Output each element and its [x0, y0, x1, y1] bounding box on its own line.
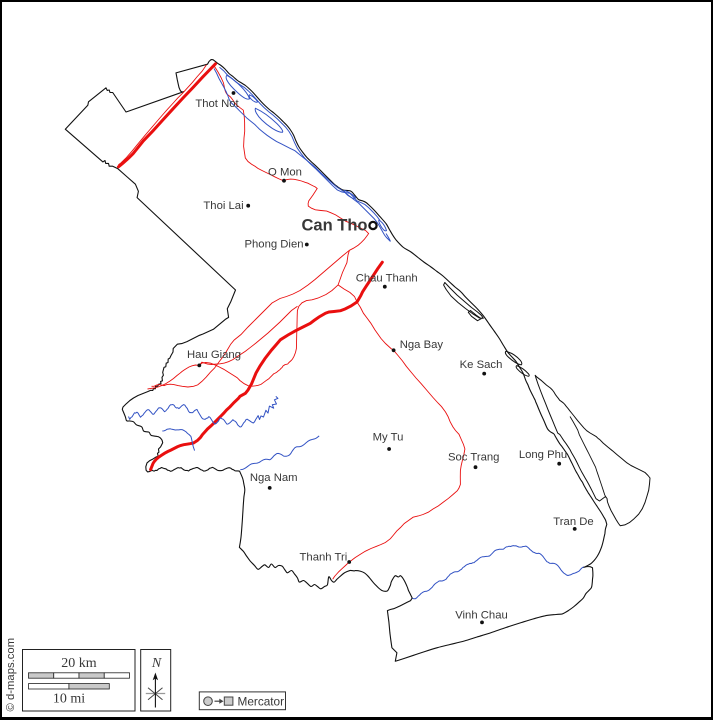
svg-text:Can Tho: Can Tho	[302, 217, 368, 235]
svg-text:Phong Dien: Phong Dien	[244, 239, 303, 251]
svg-text:Vinh Chau: Vinh Chau	[455, 610, 508, 622]
svg-text:Long Phu: Long Phu	[519, 449, 567, 461]
svg-text:Ke Sach: Ke Sach	[460, 359, 503, 371]
svg-text:Nga Bay: Nga Bay	[400, 339, 444, 351]
svg-text:Thot Not: Thot Not	[195, 98, 239, 110]
svg-text:Tran De: Tran De	[553, 516, 593, 528]
svg-text:My Tu: My Tu	[373, 432, 404, 444]
svg-text:10 mi: 10 mi	[53, 692, 85, 707]
svg-text:N: N	[151, 656, 162, 671]
svg-text:O Mon: O Mon	[268, 167, 302, 179]
svg-text:Hau Giang: Hau Giang	[187, 349, 241, 361]
svg-text:Thoi Lai: Thoi Lai	[203, 200, 243, 212]
svg-text:Chau Thanh: Chau Thanh	[356, 273, 418, 285]
svg-text:Mercator: Mercator	[238, 694, 285, 708]
svg-text:Thanh Tri: Thanh Tri	[300, 552, 348, 564]
svg-text:20 km: 20 km	[61, 656, 97, 671]
svg-text:Nga Nam: Nga Nam	[250, 472, 298, 484]
svg-text:Soc Trang: Soc Trang	[448, 452, 500, 464]
svg-text:© d-maps.com: © d-maps.com	[5, 638, 17, 712]
